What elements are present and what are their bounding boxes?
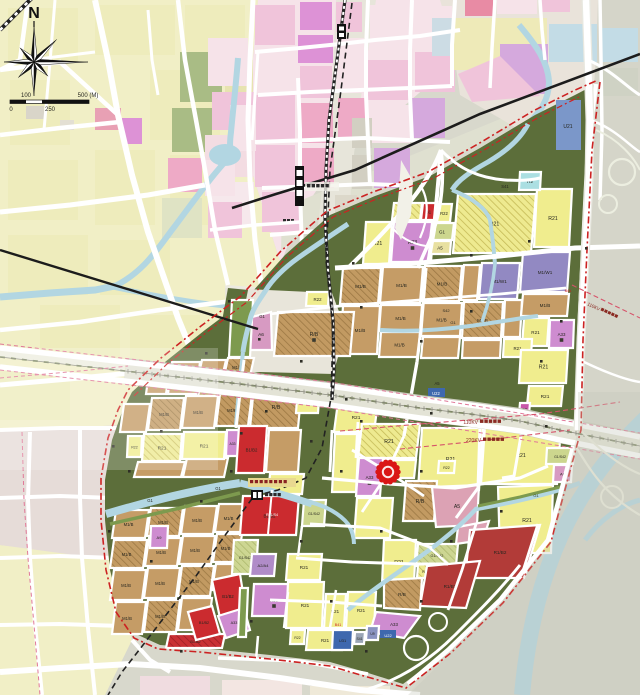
- svg-text:G1/S42: G1/S42: [554, 455, 566, 459]
- svg-text:A5: A5: [437, 246, 443, 251]
- svg-text:R21: R21: [539, 365, 549, 371]
- svg-text:R21: R21: [531, 330, 540, 335]
- svg-text:R22: R22: [294, 636, 300, 640]
- svg-text:M1/B: M1/B: [396, 283, 407, 288]
- svg-text:G1: G1: [533, 493, 539, 498]
- svg-text:G1/S42: G1/S42: [239, 556, 251, 560]
- svg-text:100: 100: [21, 93, 32, 99]
- svg-text:S41: S41: [501, 184, 509, 189]
- svg-text:R21: R21: [384, 439, 394, 445]
- svg-text:M1/B: M1/B: [192, 518, 202, 523]
- svg-text:A6: A6: [258, 332, 264, 338]
- svg-text:M1/B: M1/B: [122, 616, 132, 621]
- svg-text:B1/B2: B1/B2: [222, 594, 234, 599]
- svg-text:B41: B41: [335, 623, 341, 627]
- svg-text:M1/B: M1/B: [121, 583, 131, 588]
- svg-text:M1/B: M1/B: [355, 328, 366, 333]
- svg-text:M1/B: M1/B: [156, 550, 166, 555]
- svg-text:A5: A5: [454, 504, 460, 510]
- svg-text:M1/B: M1/B: [221, 546, 231, 551]
- svg-text:R21: R21: [522, 518, 532, 524]
- svg-text:M1/B: M1/B: [124, 522, 134, 527]
- svg-text:M1/B: M1/B: [394, 343, 404, 348]
- svg-text:N: N: [28, 5, 40, 22]
- svg-text:M1/B: M1/B: [436, 318, 446, 323]
- svg-text:R1/B2: R1/B2: [494, 550, 507, 555]
- svg-text:M1/B: M1/B: [224, 516, 234, 521]
- svg-text:R21/S4: R21/S4: [266, 513, 278, 517]
- svg-text:A9: A9: [157, 535, 163, 540]
- svg-text:U22: U22: [432, 391, 440, 396]
- svg-text:U9: U9: [370, 632, 374, 636]
- svg-text:R21: R21: [300, 565, 309, 570]
- svg-text:R22: R22: [443, 466, 450, 470]
- svg-text:A2/A4: A2/A4: [258, 563, 270, 568]
- svg-text:R/B: R/B: [310, 332, 319, 338]
- svg-text:R21: R21: [321, 638, 330, 643]
- svg-text:M1/B: M1/B: [540, 303, 551, 308]
- svg-text:G1: G1: [450, 320, 456, 325]
- svg-text:U31: U31: [339, 638, 347, 643]
- svg-text:G1/S42: G1/S42: [308, 512, 320, 516]
- svg-text:M1/B: M1/B: [122, 552, 132, 557]
- svg-text:A33: A33: [229, 442, 235, 446]
- svg-text:U22: U22: [384, 633, 392, 638]
- svg-text:220KV: 220KV: [466, 438, 482, 444]
- svg-text:A33: A33: [558, 332, 566, 337]
- svg-text:M1/B: M1/B: [395, 316, 405, 321]
- svg-text:250: 250: [45, 107, 56, 113]
- svg-text:M1/B: M1/B: [355, 284, 366, 289]
- svg-text:500 (M): 500 (M): [78, 93, 99, 99]
- svg-text:A5: A5: [434, 381, 440, 386]
- svg-text:M1/B: M1/B: [190, 548, 200, 553]
- svg-text:G1: G1: [259, 314, 265, 319]
- svg-text:M1/B: M1/B: [155, 614, 165, 619]
- svg-text:S41: S41: [356, 637, 362, 641]
- svg-text:R21: R21: [357, 608, 366, 613]
- svg-text:R22: R22: [313, 297, 322, 302]
- svg-text:R21: R21: [548, 216, 558, 222]
- svg-text:M1/W1: M1/W1: [538, 270, 553, 275]
- svg-text:A33: A33: [366, 475, 374, 480]
- svg-text:110KV: 110KV: [463, 420, 478, 426]
- svg-text:B1/B2: B1/B2: [199, 621, 209, 625]
- svg-text:R21: R21: [352, 415, 361, 421]
- svg-text:A33: A33: [231, 621, 238, 625]
- svg-text:R/B: R/B: [398, 592, 406, 597]
- svg-text:G1: G1: [147, 498, 153, 503]
- svg-text:R21: R21: [541, 394, 550, 400]
- svg-text:M1/B: M1/B: [437, 282, 448, 287]
- svg-text:R/B: R/B: [272, 405, 281, 411]
- svg-text:S42: S42: [442, 308, 450, 313]
- svg-text:R21: R21: [301, 603, 310, 608]
- svg-text:U21: U21: [563, 124, 572, 130]
- svg-text:B41: B41: [565, 289, 572, 293]
- svg-text:M1/B: M1/B: [158, 520, 168, 525]
- svg-text:B1/B2: B1/B2: [246, 448, 258, 453]
- svg-text:G1: G1: [439, 230, 446, 235]
- svg-text:G1: G1: [215, 486, 221, 491]
- svg-text:R22: R22: [440, 211, 448, 216]
- svg-text:A33: A33: [390, 622, 398, 627]
- svg-text:R/B: R/B: [416, 499, 425, 505]
- svg-text:M1/B: M1/B: [155, 581, 165, 586]
